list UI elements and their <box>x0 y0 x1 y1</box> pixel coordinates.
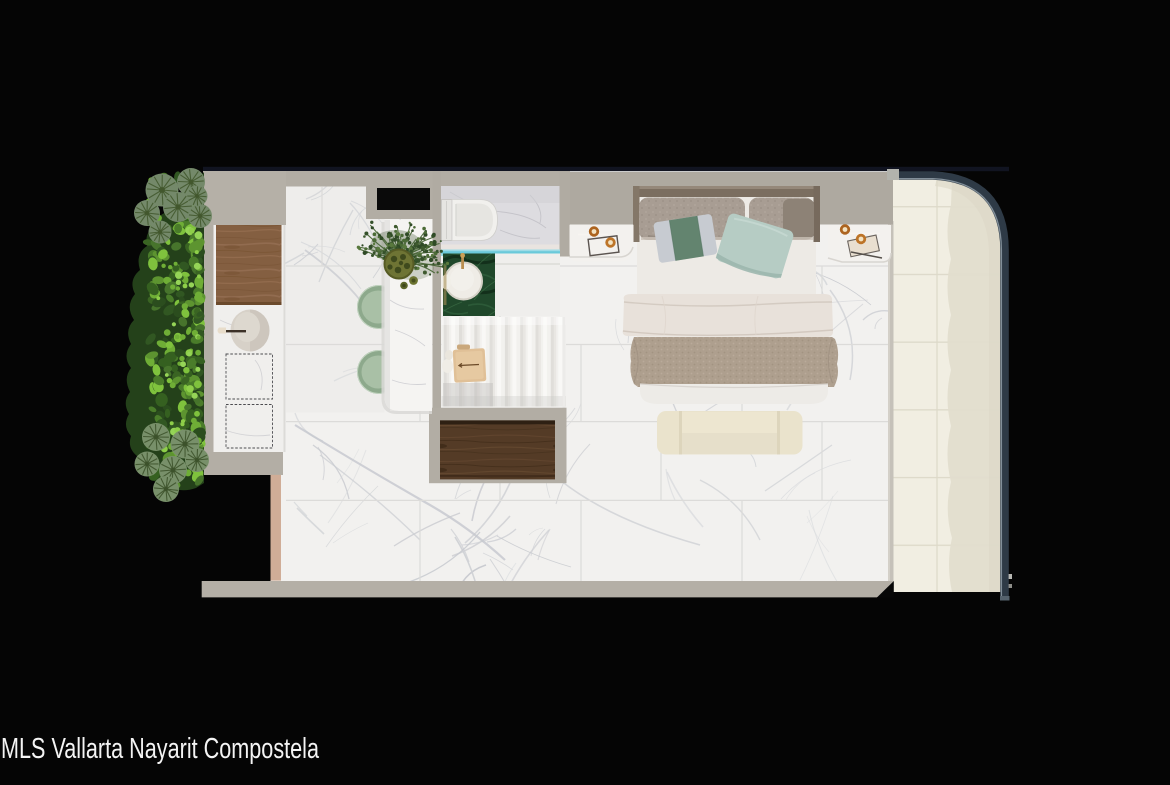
svg-text:MLS Vallarta Nayarit Compostel: MLS Vallarta Nayarit Compostela <box>1 733 319 765</box>
